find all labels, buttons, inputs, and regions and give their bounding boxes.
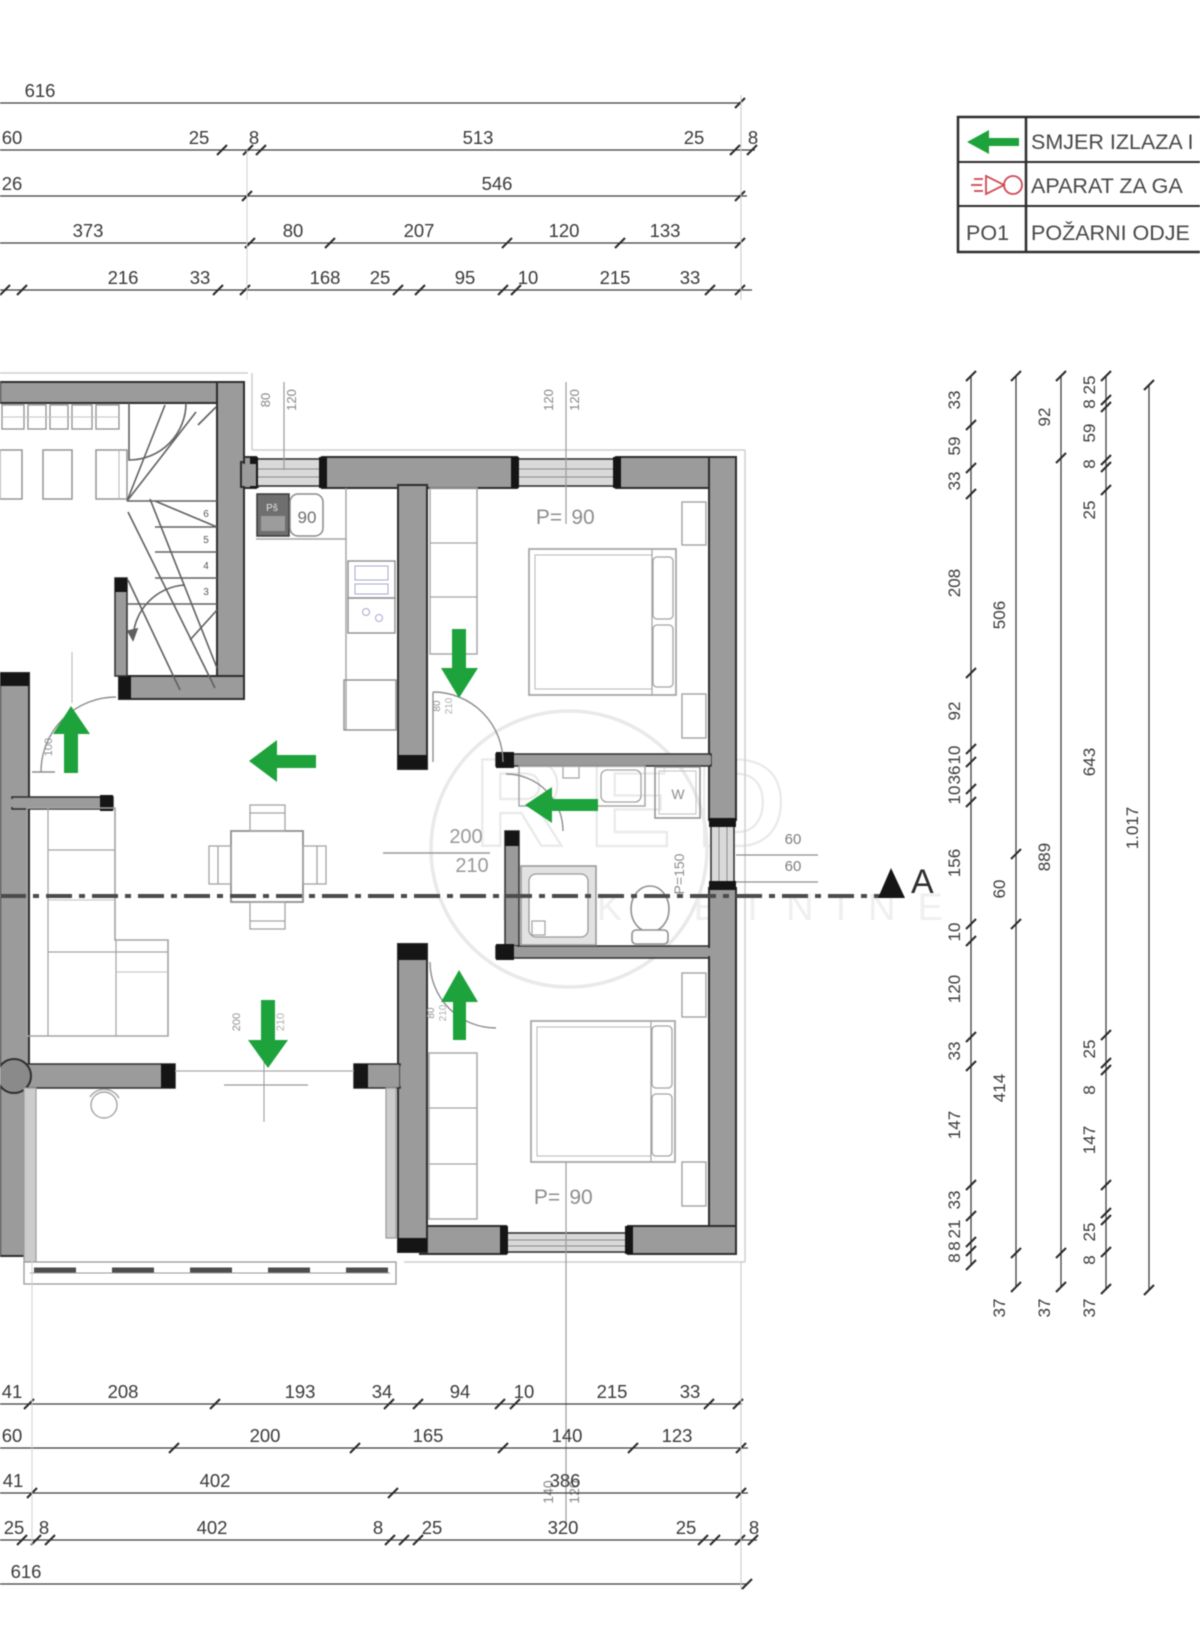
svg-text:210: 210 — [438, 1004, 449, 1021]
svg-text:60: 60 — [785, 831, 802, 848]
svg-text:120: 120 — [541, 389, 556, 411]
svg-text:POŽARNI ODJE: POŽARNI ODJE — [1031, 220, 1190, 245]
svg-text:25: 25 — [684, 127, 705, 148]
svg-text:6: 6 — [203, 509, 209, 520]
svg-text:10: 10 — [945, 786, 964, 805]
svg-text:80: 80 — [432, 700, 443, 712]
svg-text:3: 3 — [203, 587, 209, 598]
svg-text:120: 120 — [567, 389, 582, 411]
svg-text:120: 120 — [549, 220, 580, 241]
svg-text:34: 34 — [372, 1381, 393, 1402]
svg-text:37: 37 — [1080, 1299, 1099, 1318]
svg-text:21: 21 — [945, 1220, 964, 1239]
svg-text:123: 123 — [662, 1425, 693, 1446]
svg-text:643: 643 — [1080, 748, 1099, 776]
svg-text:147: 147 — [1080, 1126, 1099, 1154]
svg-text:25: 25 — [676, 1517, 697, 1538]
svg-text:90: 90 — [571, 506, 594, 529]
svg-text:36: 36 — [945, 766, 964, 785]
svg-text:25: 25 — [422, 1517, 443, 1538]
svg-text:168: 168 — [310, 267, 341, 288]
svg-text:33: 33 — [680, 1381, 701, 1402]
svg-text:616: 616 — [11, 1561, 42, 1582]
svg-text:8: 8 — [373, 1517, 383, 1538]
svg-text:25: 25 — [1080, 376, 1099, 395]
svg-text:26: 26 — [2, 173, 23, 194]
svg-text:33: 33 — [945, 1042, 964, 1061]
svg-text:8: 8 — [1080, 399, 1099, 408]
svg-text:200: 200 — [231, 1013, 243, 1031]
svg-text:60: 60 — [990, 880, 1009, 899]
svg-text:200: 200 — [250, 1425, 281, 1446]
svg-text:207: 207 — [404, 220, 435, 241]
svg-text:8: 8 — [1080, 1085, 1099, 1094]
svg-text:25: 25 — [4, 1517, 25, 1538]
svg-text:60: 60 — [2, 127, 23, 148]
svg-text:513: 513 — [463, 127, 494, 148]
svg-text:25: 25 — [1080, 501, 1099, 520]
svg-text:140: 140 — [552, 1425, 583, 1446]
svg-text:616: 616 — [25, 80, 56, 101]
svg-text:37: 37 — [1035, 1299, 1054, 1318]
svg-text:210: 210 — [455, 855, 488, 877]
svg-text:SMJER IZLAZA I: SMJER IZLAZA I — [1031, 130, 1193, 154]
svg-text:Pš: Pš — [266, 503, 278, 514]
svg-text:33: 33 — [945, 472, 964, 491]
svg-text:92: 92 — [1035, 408, 1054, 427]
svg-text:8: 8 — [39, 1517, 49, 1538]
svg-text:33: 33 — [190, 267, 211, 288]
svg-text:90: 90 — [298, 508, 317, 527]
svg-text:414: 414 — [990, 1074, 1009, 1102]
svg-text:8: 8 — [249, 127, 259, 148]
svg-text:25: 25 — [370, 267, 391, 288]
svg-text:402: 402 — [200, 1470, 231, 1491]
svg-text:33: 33 — [945, 1191, 964, 1210]
svg-text:PO1: PO1 — [966, 221, 1009, 245]
svg-text:33: 33 — [945, 391, 964, 410]
svg-text:216: 216 — [108, 267, 139, 288]
svg-text:60: 60 — [785, 858, 802, 875]
svg-text:A: A — [911, 863, 934, 901]
svg-text:320: 320 — [548, 1517, 579, 1538]
svg-text:W: W — [671, 786, 685, 802]
svg-text:200: 200 — [449, 826, 482, 848]
svg-text:8: 8 — [945, 1253, 964, 1262]
svg-text:8: 8 — [1080, 459, 1099, 468]
svg-text:193: 193 — [285, 1381, 316, 1402]
svg-text:386: 386 — [550, 1470, 581, 1491]
svg-text:10: 10 — [518, 267, 539, 288]
svg-text:147: 147 — [945, 1111, 964, 1139]
svg-text:37: 37 — [990, 1299, 1009, 1318]
svg-text:210: 210 — [275, 1013, 287, 1031]
svg-text:889: 889 — [1035, 843, 1054, 871]
svg-text:208: 208 — [108, 1381, 139, 1402]
svg-text:215: 215 — [600, 267, 631, 288]
svg-text:8: 8 — [748, 127, 758, 148]
svg-text:8: 8 — [749, 1517, 759, 1538]
svg-text:25: 25 — [1080, 1040, 1099, 1059]
svg-text:80: 80 — [426, 1007, 437, 1019]
svg-text:8: 8 — [945, 1241, 964, 1250]
svg-text:10: 10 — [945, 923, 964, 942]
svg-text:120: 120 — [284, 389, 299, 411]
svg-text:373: 373 — [73, 220, 104, 241]
svg-text:25: 25 — [189, 127, 210, 148]
svg-text:P=: P= — [536, 506, 562, 529]
svg-text:P=: P= — [534, 1186, 560, 1209]
svg-text:33: 33 — [680, 267, 701, 288]
svg-text:1.017: 1.017 — [1123, 807, 1142, 850]
svg-text:APARAT ZA GA: APARAT ZA GA — [1031, 174, 1183, 198]
svg-text:41: 41 — [2, 1381, 23, 1402]
svg-text:59: 59 — [945, 437, 964, 456]
svg-text:5: 5 — [203, 535, 209, 546]
svg-text:92: 92 — [945, 702, 964, 721]
svg-text:8: 8 — [1080, 1255, 1099, 1264]
svg-text:10: 10 — [514, 1381, 535, 1402]
svg-text:4: 4 — [203, 561, 209, 572]
svg-text:59: 59 — [1080, 424, 1099, 443]
svg-text:94: 94 — [450, 1381, 471, 1402]
svg-text:208: 208 — [945, 569, 964, 597]
svg-text:60: 60 — [2, 1425, 23, 1446]
svg-text:165: 165 — [413, 1425, 444, 1446]
svg-text:100: 100 — [43, 738, 55, 756]
svg-text:402: 402 — [197, 1517, 228, 1538]
svg-text:506: 506 — [990, 601, 1009, 629]
svg-text:90: 90 — [569, 1186, 592, 1209]
svg-text:133: 133 — [650, 220, 681, 241]
svg-text:10: 10 — [945, 746, 964, 765]
svg-text:41: 41 — [3, 1470, 24, 1491]
svg-text:120: 120 — [945, 975, 964, 1003]
svg-text:215: 215 — [597, 1381, 628, 1402]
svg-text:25: 25 — [1080, 1223, 1099, 1242]
svg-text:546: 546 — [482, 173, 513, 194]
svg-text:P=150: P=150 — [671, 853, 687, 894]
svg-text:80: 80 — [283, 220, 304, 241]
svg-text:95: 95 — [455, 267, 476, 288]
svg-text:80: 80 — [258, 393, 273, 407]
svg-text:210: 210 — [444, 697, 455, 714]
svg-text:156: 156 — [945, 849, 964, 877]
